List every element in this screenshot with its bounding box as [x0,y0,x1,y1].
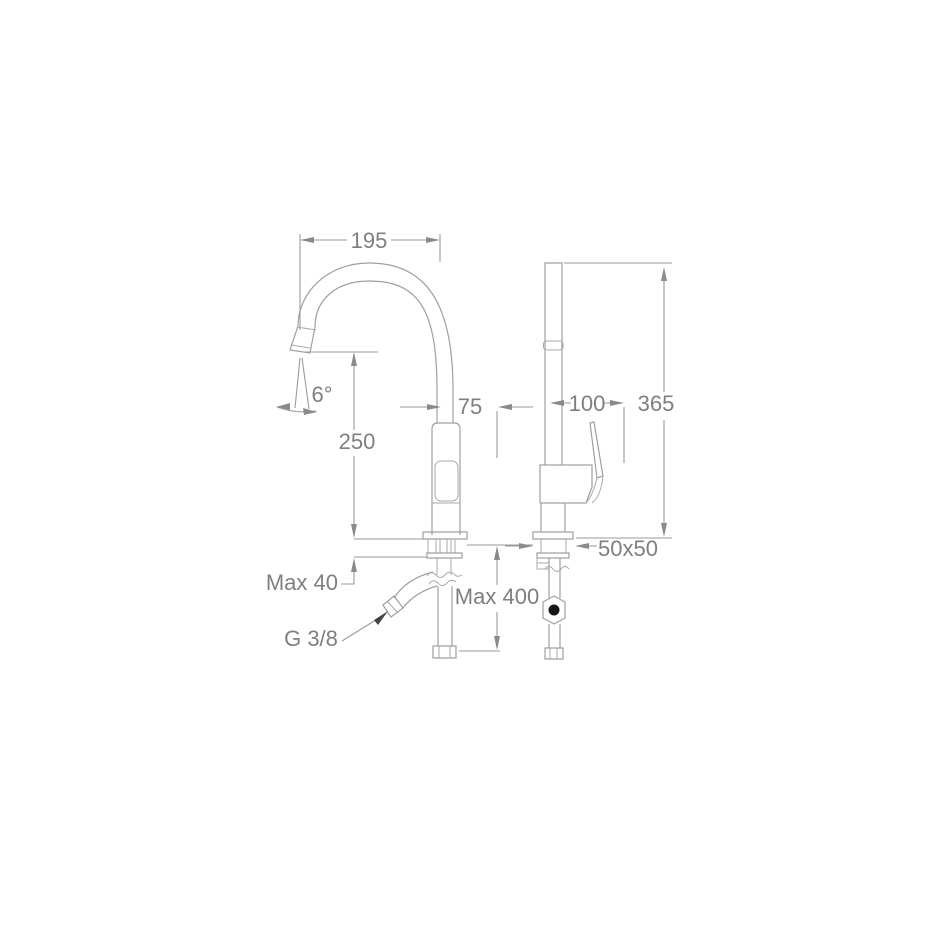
dim-base-size: 50x50 [505,536,658,561]
flexible-hose [394,572,437,609]
dimensions: 195 6° 250 75 [266,228,675,651]
dim-body-offset-label: 75 [458,394,482,419]
locknut-plate [427,553,462,558]
dim-depth: 100 [550,391,624,463]
dim-outlet-height: 250 [305,352,378,538]
aerator-band [544,341,564,350]
dim-inlet-thread: G 3/8 [284,611,388,651]
dim-hose-length-label: Max 400 [455,584,539,609]
dim-inlet-thread-label: G 3/8 [284,626,338,651]
dim-spout-reach-label: 195 [351,228,388,253]
side-body-neck [541,503,565,532]
dim-deck-thickness-label: Max 40 [266,570,338,595]
supply-tube [438,586,452,646]
faucet-body [432,423,460,535]
shank [428,539,455,553]
hex-nut-hole [549,605,560,616]
dim-hose-length: Max 400 [455,545,539,651]
supply-tube-fitting [433,646,456,658]
nozzle-aerator [291,345,310,348]
spout-column [545,263,562,465]
dim-total-height-label: 365 [638,391,675,416]
dim-outlet-height-label: 250 [339,429,376,454]
faucet-spec-sheet: 195 6° 250 75 [0,0,950,950]
technical-drawing: 195 6° 250 75 [0,0,950,950]
dim-depth-label: 100 [569,391,606,416]
rod-end-fitting-line [550,648,557,659]
side-base-flange [533,532,573,539]
rod-end-fitting [545,648,563,659]
g38-fitting [383,596,403,617]
side-body [540,465,592,503]
side-shank [541,539,566,553]
dim-deck-thickness: Max 40 [266,539,427,595]
side-locknut-plate [537,553,569,558]
g38-fitting-line [387,601,398,613]
threaded-rod-lower [549,624,560,648]
dim-base-size-label: 50x50 [598,536,658,561]
dim-spout-angle: 6° [276,358,333,415]
dim-body-offset: 75 [400,394,533,458]
dim-spout-angle-label: 6° [311,382,332,407]
lever-foot [586,476,603,503]
side-view [533,263,603,659]
threaded-rod [549,558,560,598]
supply-tube-fitting-lines [439,646,450,658]
cartridge-section [435,461,458,501]
front-view [290,263,467,658]
